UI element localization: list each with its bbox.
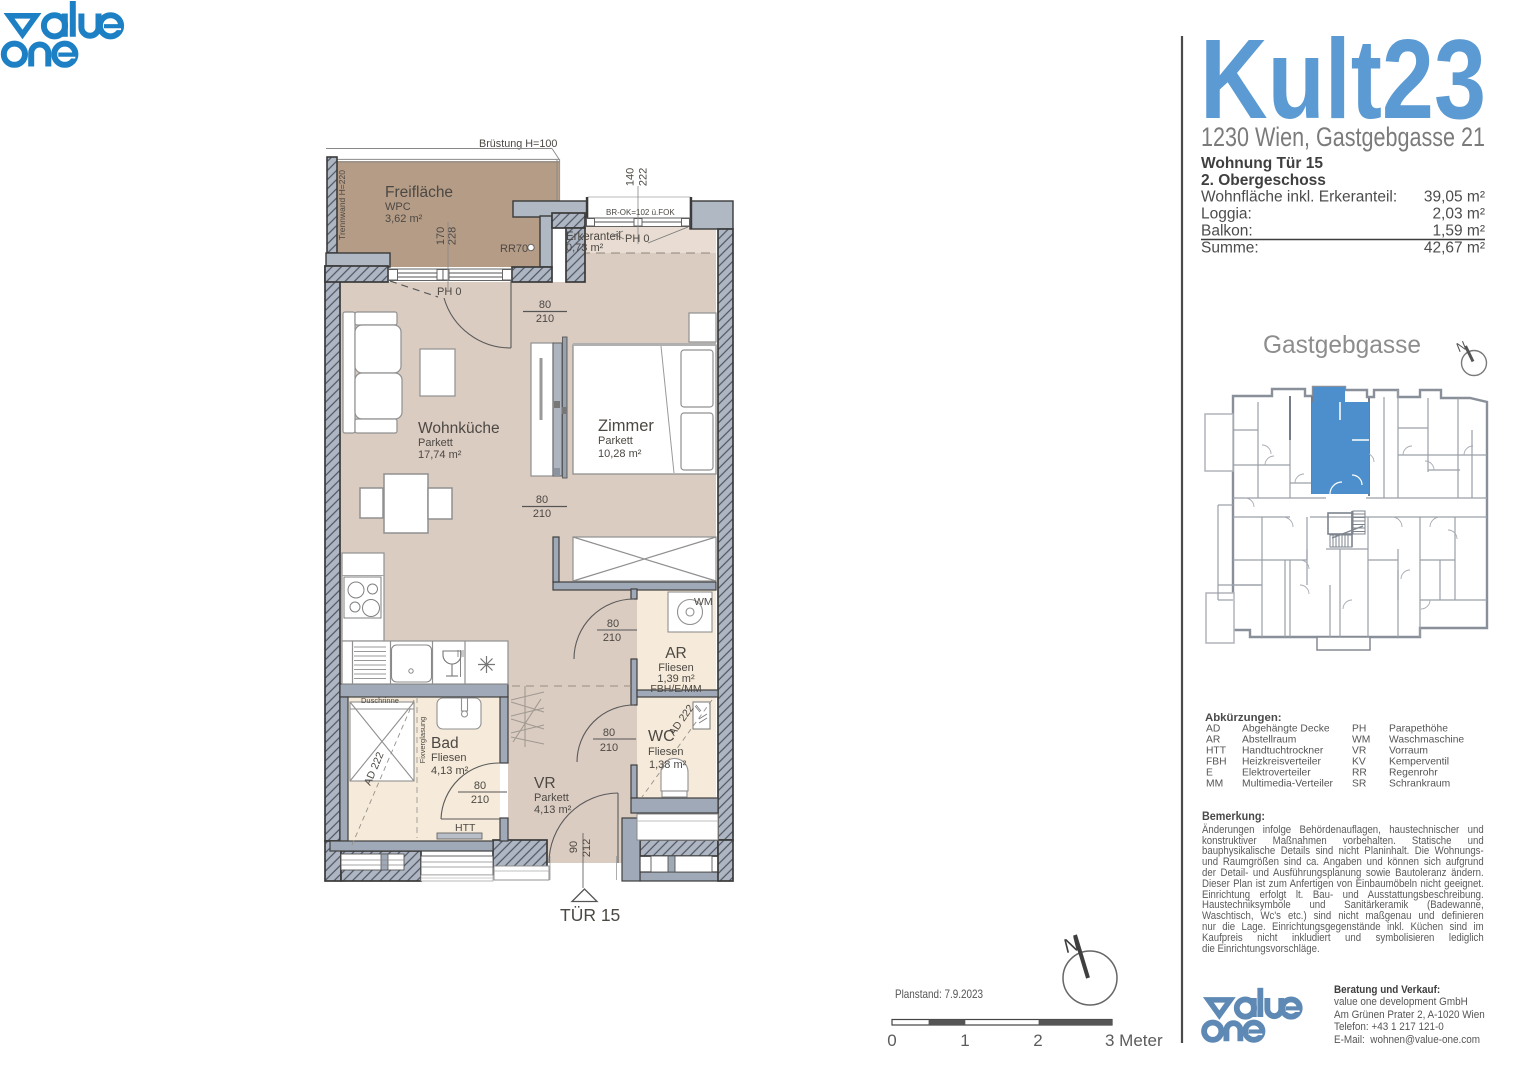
svg-text:90: 90 bbox=[568, 841, 580, 853]
svg-text:Planstand: 7.9.2023: Planstand: 7.9.2023 bbox=[895, 987, 983, 1001]
svg-text:Parkett: Parkett bbox=[534, 792, 569, 804]
svg-text:AR: AR bbox=[1206, 735, 1220, 746]
svg-text:N: N bbox=[1062, 933, 1081, 958]
svg-text:VR: VR bbox=[1352, 746, 1366, 757]
svg-text:AD: AD bbox=[1206, 724, 1220, 735]
svg-text:2,03 m²: 2,03 m² bbox=[1432, 206, 1485, 223]
svg-text:HTT: HTT bbox=[455, 822, 476, 834]
svg-text:BR-OK=102 ü.FOK: BR-OK=102 ü.FOK bbox=[606, 208, 675, 217]
svg-text:Abgehängte Decke: Abgehängte Decke bbox=[1242, 724, 1330, 735]
svg-text:222: 222 bbox=[638, 168, 650, 186]
svg-text:210: 210 bbox=[533, 508, 551, 520]
svg-text:Loggia:: Loggia: bbox=[1201, 206, 1252, 223]
svg-text:Parapethöhe: Parapethöhe bbox=[1389, 724, 1448, 735]
svg-text:Wohnfläche inkl. Erkeranteil:: Wohnfläche inkl. Erkeranteil: bbox=[1201, 189, 1397, 206]
svg-text:Fliesen: Fliesen bbox=[648, 746, 683, 758]
svg-text:VR: VR bbox=[534, 775, 556, 792]
svg-text:Gastgebgasse: Gastgebgasse bbox=[1263, 331, 1421, 359]
svg-text:2: 2 bbox=[1033, 1031, 1042, 1050]
svg-text:RR70: RR70 bbox=[500, 243, 528, 255]
svg-text:Schrankraum: Schrankraum bbox=[1389, 779, 1450, 790]
svg-text:Kemperventil: Kemperventil bbox=[1389, 757, 1449, 768]
svg-text:1,59 m²: 1,59 m² bbox=[1432, 223, 1485, 240]
svg-text:Abkürzungen:: Abkürzungen: bbox=[1205, 712, 1282, 724]
svg-text:210: 210 bbox=[471, 794, 489, 806]
svg-text:Balkon:: Balkon: bbox=[1201, 223, 1253, 240]
svg-text:TÜR 15: TÜR 15 bbox=[560, 905, 620, 925]
svg-text:Elektroverteiler: Elektroverteiler bbox=[1242, 768, 1311, 779]
svg-text:80: 80 bbox=[607, 618, 619, 630]
svg-text:FBH: FBH bbox=[1206, 757, 1227, 768]
svg-text:Abstellraum: Abstellraum bbox=[1242, 735, 1296, 746]
svg-text:212: 212 bbox=[581, 839, 593, 857]
svg-text:39,05 m²: 39,05 m² bbox=[1424, 189, 1485, 206]
svg-text:WPC: WPC bbox=[385, 201, 411, 213]
svg-text:Duschrinne: Duschrinne bbox=[361, 696, 399, 705]
svg-text:SR: SR bbox=[1352, 779, 1366, 790]
svg-text:Bad: Bad bbox=[431, 735, 459, 752]
svg-text:170: 170 bbox=[435, 227, 447, 245]
svg-text:Vorraum: Vorraum bbox=[1389, 746, 1428, 757]
svg-text:Wohnküche: Wohnküche bbox=[418, 420, 500, 437]
svg-text:HTT: HTT bbox=[1206, 746, 1227, 757]
svg-text:Multimedia-Verteiler: Multimedia-Verteiler bbox=[1242, 779, 1334, 790]
svg-text:4,13 m²: 4,13 m² bbox=[431, 765, 469, 777]
svg-text:PH 0: PH 0 bbox=[625, 233, 649, 245]
svg-text:2. Obergeschoss: 2. Obergeschoss bbox=[1201, 172, 1326, 189]
svg-text:0: 0 bbox=[887, 1031, 896, 1050]
svg-text:FBH/E/MM: FBH/E/MM bbox=[650, 683, 701, 695]
svg-text:Heizkreisverteiler: Heizkreisverteiler bbox=[1242, 757, 1322, 768]
svg-text:Zimmer: Zimmer bbox=[598, 417, 654, 435]
svg-text:Wohnung Tür 15: Wohnung Tür 15 bbox=[1201, 155, 1323, 172]
svg-text:KV: KV bbox=[1352, 757, 1366, 768]
svg-text:3,62 m²: 3,62 m² bbox=[385, 213, 423, 225]
svg-text:RR: RR bbox=[1352, 768, 1367, 779]
svg-text:80: 80 bbox=[474, 780, 486, 792]
svg-text:AR: AR bbox=[665, 645, 687, 662]
svg-text:80: 80 bbox=[536, 494, 548, 506]
svg-text:210: 210 bbox=[600, 742, 618, 754]
svg-text:Waschmaschine: Waschmaschine bbox=[1389, 735, 1464, 746]
svg-text:210: 210 bbox=[536, 313, 554, 325]
svg-text:Parkett: Parkett bbox=[598, 435, 633, 447]
svg-text:80: 80 bbox=[539, 299, 551, 311]
svg-text:Parkett: Parkett bbox=[418, 437, 453, 449]
svg-text:Fliesen: Fliesen bbox=[431, 752, 466, 764]
svg-text:17,74 m²: 17,74 m² bbox=[418, 449, 462, 461]
svg-text:Fixverglasung: Fixverglasung bbox=[418, 717, 427, 764]
svg-text:PH 0: PH 0 bbox=[437, 286, 461, 298]
svg-text:MM: MM bbox=[1206, 779, 1223, 790]
svg-text:Handtuchtrockner: Handtuchtrockner bbox=[1242, 746, 1324, 757]
svg-text:0,73 m²: 0,73 m² bbox=[566, 242, 604, 254]
svg-text:Regenrohr: Regenrohr bbox=[1389, 768, 1438, 779]
svg-text:140: 140 bbox=[625, 168, 637, 186]
svg-text:42,67 m²: 42,67 m² bbox=[1424, 240, 1485, 257]
svg-text:3 Meter: 3 Meter bbox=[1105, 1031, 1163, 1050]
svg-text:PH: PH bbox=[1352, 724, 1366, 735]
svg-text:10,28 m²: 10,28 m² bbox=[598, 448, 642, 460]
svg-text:Freifläche: Freifläche bbox=[385, 184, 453, 201]
svg-text:80: 80 bbox=[603, 727, 615, 739]
svg-text:E: E bbox=[1206, 768, 1213, 779]
svg-text:Summe:: Summe: bbox=[1201, 240, 1259, 257]
svg-text:210: 210 bbox=[603, 632, 621, 644]
svg-text:WM: WM bbox=[694, 596, 713, 608]
svg-text:1: 1 bbox=[960, 1031, 969, 1050]
svg-text:4,13 m²: 4,13 m² bbox=[534, 804, 572, 816]
svg-text:1230 Wien, Gastgebgasse 21: 1230 Wien, Gastgebgasse 21 bbox=[1201, 122, 1485, 152]
svg-text:WM: WM bbox=[1352, 735, 1370, 746]
svg-text:Trennwand H=220: Trennwand H=220 bbox=[337, 170, 347, 240]
